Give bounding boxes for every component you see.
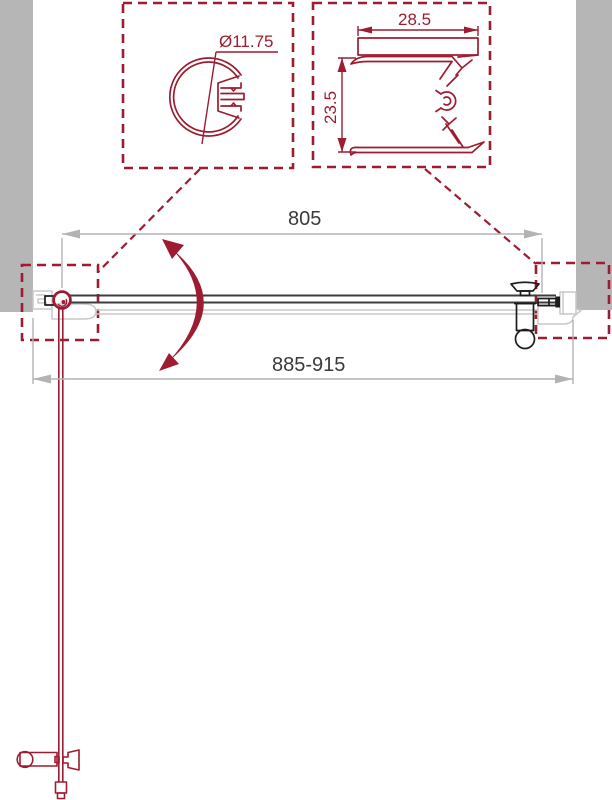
dimension-profile-width: 28.5 — [358, 10, 478, 36]
wall-profile-bottom-lip — [350, 142, 484, 155]
profile-width-label: 28.5 — [398, 10, 431, 29]
bottom-seal-strip — [52, 304, 581, 324]
hinge-wall-bracket — [33, 291, 54, 309]
open-door-handle — [17, 752, 59, 768]
door-glass-closed — [70, 296, 556, 303]
diameter-leader-line — [202, 52, 216, 144]
dimension-glass-width: 805 — [62, 208, 542, 293]
swing-direction-arrow — [159, 239, 204, 371]
dimension-overall-width: 885-915 — [33, 318, 573, 384]
shower-door-plan-drawing: Ø11.75 28.5 — [0, 0, 612, 800]
overall-width-label: 885-915 — [272, 354, 345, 376]
glass-width-label: 805 — [288, 208, 321, 230]
detail-box-left — [123, 3, 293, 168]
dimension-profile-height: 23.5 — [321, 58, 356, 152]
round-profile-glass-channel — [218, 76, 244, 118]
leader-line-left — [98, 169, 200, 272]
wall-profile-on-plan — [560, 292, 576, 314]
leader-line-right — [425, 169, 536, 264]
wall-profile-detail: 28.5 23.5 — [321, 10, 484, 155]
wall-profile-body — [436, 55, 478, 147]
open-door-knob — [63, 750, 79, 770]
open-door-end-cap — [56, 782, 67, 799]
wall-profile-top-lip — [351, 57, 452, 65]
hinge-pivot — [54, 292, 71, 309]
diameter-label: Ø11.75 — [219, 32, 274, 51]
technical-drawing-page: Ø11.75 28.5 — [0, 0, 612, 800]
wall-profile-top-flange — [358, 38, 478, 55]
profile-height-label: 23.5 — [321, 91, 340, 124]
round-profile-detail: Ø11.75 — [170, 32, 278, 144]
